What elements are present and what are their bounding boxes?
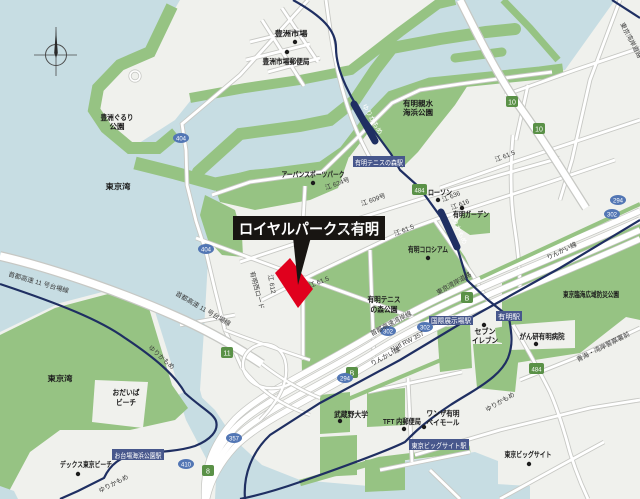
- svg-text:おだいば: おだいば: [113, 387, 140, 397]
- svg-text:アーバンスポーツパーク: アーバンスポーツパーク: [282, 169, 345, 179]
- svg-text:8: 8: [206, 469, 210, 476]
- svg-text:セブン: セブン: [475, 326, 496, 336]
- svg-text:10: 10: [535, 127, 543, 134]
- svg-text:有明ガーデン: 有明ガーデン: [453, 209, 489, 219]
- svg-text:がん研有明病院: がん研有明病院: [520, 331, 565, 341]
- svg-text:イレブン: イレブン: [472, 335, 498, 345]
- svg-text:410: 410: [181, 463, 192, 469]
- svg-text:11: 11: [223, 351, 230, 358]
- svg-text:294: 294: [340, 377, 351, 383]
- svg-text:東京臨海広域防災公園: 東京臨海広域防災公園: [563, 289, 619, 299]
- svg-text:東京ビッグサイト駅: 東京ビッグサイト駅: [412, 441, 467, 450]
- svg-text:B: B: [465, 296, 470, 303]
- svg-text:有明親水: 有明親水: [403, 98, 433, 108]
- svg-text:海浜公園: 海浜公園: [403, 107, 433, 117]
- svg-text:有明コロシアム: 有明コロシアム: [408, 244, 448, 254]
- svg-text:有明テニス: 有明テニス: [368, 294, 401, 304]
- svg-text:豊洲市場郵便局: 豊洲市場郵便局: [263, 56, 310, 66]
- svg-text:484: 484: [531, 368, 542, 374]
- svg-text:東京湾: 東京湾: [106, 181, 132, 191]
- svg-text:デックス東京ビーチ: デックス東京ビーチ: [60, 459, 112, 469]
- svg-text:ビーチ: ビーチ: [116, 397, 136, 407]
- svg-text:TFT 内郵便局: TFT 内郵便局: [383, 416, 421, 426]
- svg-text:ワンザ有明: ワンザ有明: [427, 408, 460, 418]
- svg-text:東京ビッグサイト: 東京ビッグサイト: [505, 449, 552, 459]
- svg-text:ベイモール: ベイモール: [427, 418, 460, 427]
- svg-text:有明駅: 有明駅: [498, 312, 520, 321]
- svg-text:国際展示場駅: 国際展示場駅: [431, 316, 471, 325]
- svg-text:484: 484: [414, 189, 425, 195]
- svg-text:豊洲市場: 豊洲市場: [275, 28, 309, 38]
- svg-text:302: 302: [607, 213, 618, 219]
- svg-text:404: 404: [201, 248, 212, 254]
- svg-text:有明テニスの森駅: 有明テニスの森駅: [355, 158, 403, 167]
- svg-text:武蔵野大学: 武蔵野大学: [334, 409, 368, 419]
- svg-text:357: 357: [229, 437, 240, 443]
- svg-text:豊洲ぐるり: 豊洲ぐるり: [101, 112, 134, 122]
- svg-text:294: 294: [613, 199, 624, 205]
- svg-text:404: 404: [176, 137, 187, 143]
- svg-text:東京湾: 東京湾: [48, 373, 74, 383]
- svg-text:の森公園: の森公園: [371, 304, 398, 314]
- svg-text:10: 10: [508, 100, 516, 107]
- svg-text:お台場海浜公園駅: お台場海浜公園駅: [115, 451, 162, 460]
- svg-text:公園: 公園: [110, 122, 125, 131]
